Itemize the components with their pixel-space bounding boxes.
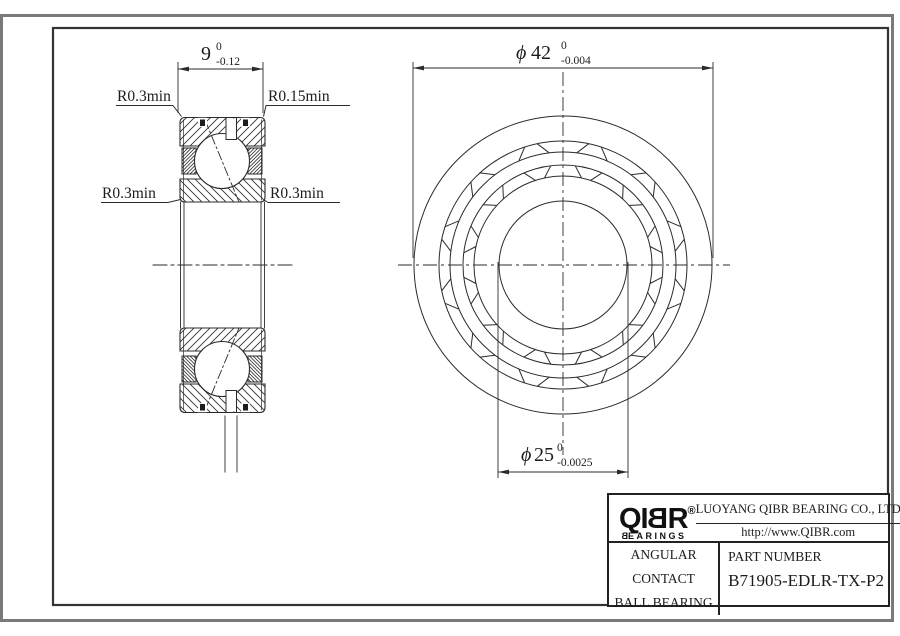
arrowhead	[252, 67, 263, 72]
product-type-cell: ANGULAR CONTACT BALL BEARING	[609, 543, 720, 615]
cage-pocket-wall	[648, 293, 656, 305]
company-name: LUOYANG QIBR BEARING CO., LTD	[696, 495, 900, 524]
ball-section	[195, 134, 250, 189]
svg-text:R0.3min: R0.3min	[270, 185, 324, 202]
cage-pocket-wall	[464, 277, 476, 283]
dimension-bore-25	[498, 262, 628, 478]
logo-mirrored-b: B	[648, 505, 668, 533]
title-block-bottom-row: ANGULAR CONTACT BALL BEARING PART NUMBER…	[609, 543, 888, 615]
cage-pocket-wall	[650, 277, 662, 283]
qibr-logo: QIBR® BEARINGS	[609, 495, 696, 541]
cage-pocket-wall	[653, 333, 655, 348]
cage-pocket-wall	[471, 333, 473, 348]
part-number-value: B71905-EDLR-TX-P2	[728, 571, 884, 591]
arrowhead	[498, 470, 509, 475]
cross-section-view	[153, 118, 292, 473]
cage-pocket-wall	[545, 166, 551, 178]
cage-pocket-wall	[653, 182, 655, 197]
svg-text:-0.004: -0.004	[561, 55, 591, 67]
seal-anchor-right	[243, 120, 248, 127]
part-number-cell: PART NUMBER B71905-EDLR-TX-P2	[720, 543, 888, 615]
cage-pocket-wall	[545, 352, 551, 364]
cage-pocket-wall	[629, 325, 643, 326]
svg-text:-0.12: -0.12	[216, 56, 240, 68]
cage-pocket-wall	[464, 247, 476, 253]
cage-pocket-wall	[480, 173, 495, 175]
svg-text:25: 25	[534, 444, 554, 466]
svg-text:0: 0	[216, 41, 222, 53]
arrowhead	[702, 66, 713, 71]
company-cell: LUOYANG QIBR BEARING CO., LTD http://www…	[696, 495, 900, 541]
seal-anchor-left	[200, 120, 205, 127]
svg-text:0: 0	[561, 40, 567, 52]
cage-pocket-wall	[537, 377, 549, 386]
cage-pocket-wall	[483, 325, 497, 326]
cage-pocket-wall	[471, 293, 479, 305]
cage-pocket-wall	[623, 331, 624, 345]
cage-pocket-wall	[442, 279, 451, 291]
cage-section-right	[248, 148, 262, 174]
cage-pocket-wall	[577, 377, 589, 386]
svg-text:ϕ: ϕ	[516, 42, 526, 64]
cage-pocket-wall	[648, 226, 656, 238]
radius-callout-mid-left: R0.3min	[101, 185, 181, 203]
cage-pocket-wall	[471, 226, 479, 238]
cage-pocket-wall	[629, 205, 643, 206]
cage-pocket-wall	[471, 182, 473, 197]
svg-text:R0.3min: R0.3min	[102, 185, 156, 202]
svg-text:42: 42	[531, 42, 551, 64]
dimension-width-9	[178, 62, 263, 113]
cage-pocket-wall	[650, 247, 662, 253]
product-type-line2: BALL BEARING	[615, 591, 713, 615]
radius-callout-mid-right: R0.3min	[264, 185, 341, 203]
company-website: http://www.QIBR.com	[696, 524, 900, 541]
logo-subtitle-mirrored-b: B	[619, 531, 628, 541]
svg-text:-0.0025: -0.0025	[557, 457, 593, 469]
cage-pocket-wall	[524, 350, 536, 358]
cage-pocket-wall	[591, 350, 603, 358]
arrowhead	[617, 470, 628, 475]
cage-pocket-wall	[575, 352, 581, 364]
cage-pocket-wall	[623, 185, 624, 199]
arrowhead	[178, 67, 189, 72]
product-type-line1: ANGULAR CONTACT	[609, 543, 718, 591]
title-block: QIBR® BEARINGS LUOYANG QIBR BEARING CO.,…	[607, 493, 890, 607]
dimension-width-9-text: 9 0 -0.12	[201, 41, 240, 68]
cage-pocket-wall	[442, 239, 451, 251]
seal-slot	[226, 119, 237, 140]
cage-pocket-wall	[503, 331, 504, 345]
cage-pocket-wall	[537, 144, 549, 153]
cage-pocket-wall	[480, 355, 495, 357]
part-number-label: PART NUMBER	[728, 549, 884, 565]
svg-text:R0.15min: R0.15min	[268, 88, 330, 105]
svg-text:ϕ: ϕ	[521, 444, 531, 466]
svg-text:0: 0	[557, 442, 563, 454]
front-view	[398, 72, 730, 455]
cage-pocket-wall	[631, 355, 646, 357]
cage-pocket-wall	[591, 173, 603, 181]
svg-text:9: 9	[201, 43, 211, 65]
cage-pocket-wall	[675, 279, 684, 291]
cage-section-left	[182, 148, 196, 174]
svg-text:R0.3min: R0.3min	[117, 88, 171, 105]
cage-pocket-wall	[577, 144, 589, 153]
radius-callout-top-left: R0.3min	[116, 88, 182, 117]
title-block-header-row: QIBR® BEARINGS LUOYANG QIBR BEARING CO.,…	[609, 495, 888, 543]
cage-pocket-wall	[483, 205, 497, 206]
registered-trademark-symbol: ®	[688, 505, 696, 517]
engineering-drawing-page: 9 0 -0.12 ϕ 42 0 -0.004 ϕ 25 0 -0.0025 R…	[0, 0, 900, 636]
radius-callout-top-right: R0.15min	[264, 88, 351, 117]
cage-pocket-wall	[631, 173, 646, 175]
logo-wordmark: QIBR®	[619, 497, 696, 533]
dimension-od-42-text: ϕ 42 0 -0.004	[516, 40, 591, 67]
cage-pocket-wall	[575, 166, 581, 178]
cross-section-top-half	[180, 118, 265, 203]
cage-pocket-wall	[524, 173, 536, 181]
arrowhead	[413, 66, 424, 71]
dimension-bore-25-text: ϕ 25 0 -0.0025	[521, 442, 593, 469]
cage-pocket-wall	[675, 239, 684, 251]
cage-pocket-wall	[503, 185, 504, 199]
cross-section-bottom-half	[180, 328, 265, 413]
